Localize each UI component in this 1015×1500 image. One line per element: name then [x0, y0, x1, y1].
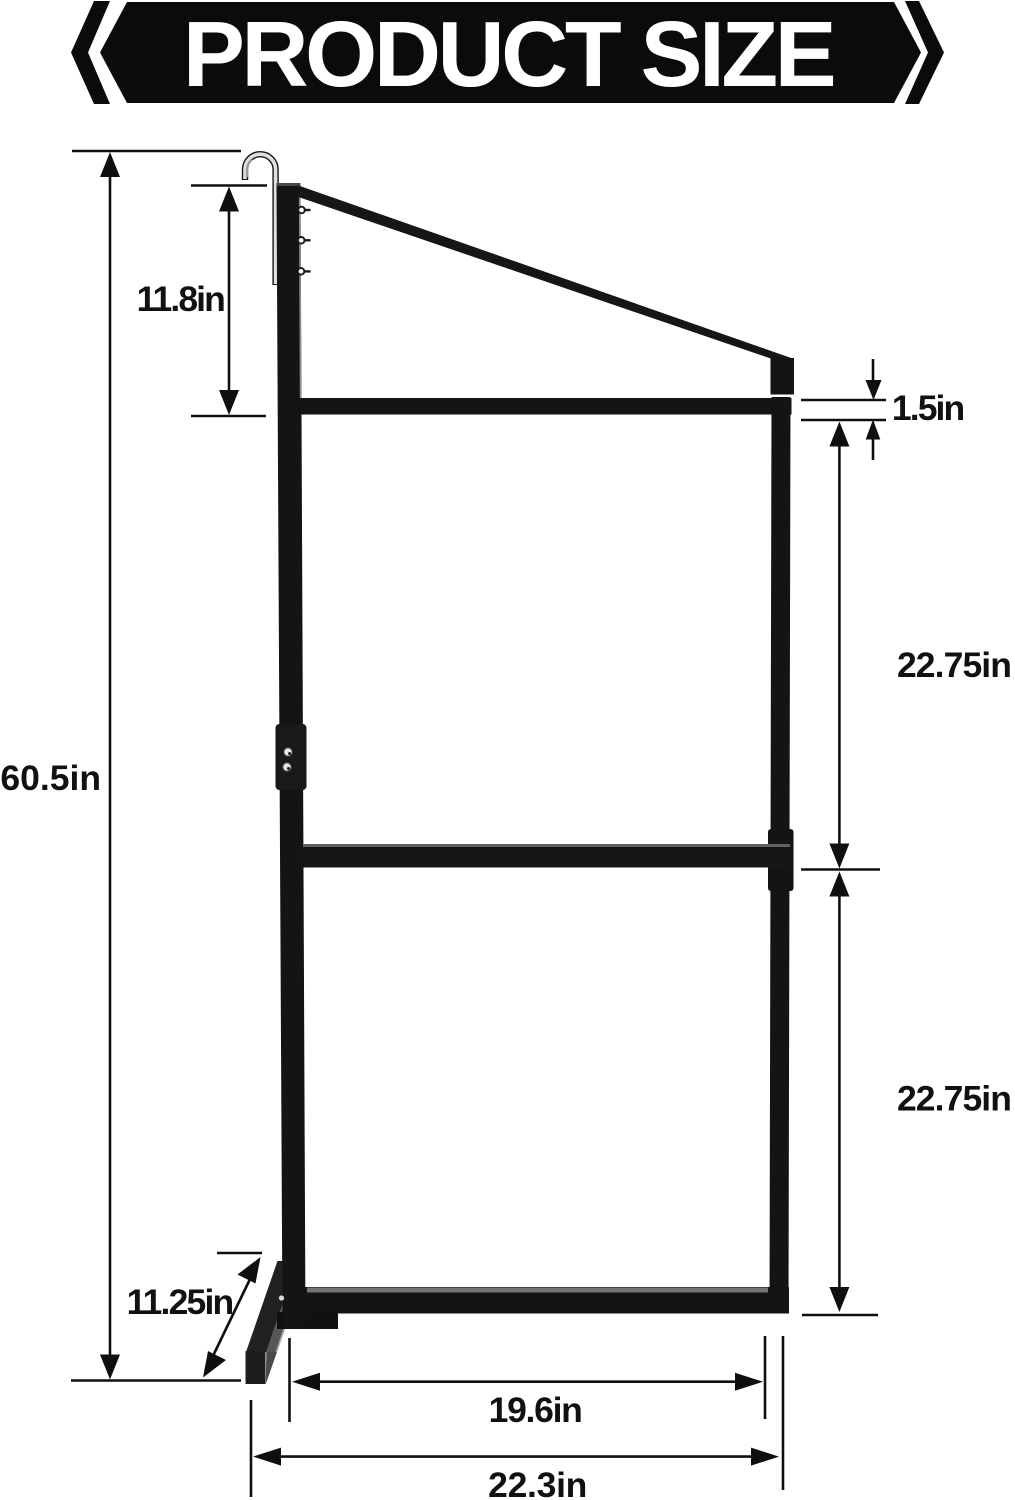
svg-text:11.25in: 11.25in	[127, 1282, 233, 1322]
svg-text:22.75in: 22.75in	[897, 1079, 1011, 1119]
svg-text:22.3in: 22.3in	[488, 1465, 587, 1500]
svg-text:PRODUCT SIZE: PRODUCT SIZE	[183, 2, 834, 106]
svg-text:19.6in: 19.6in	[489, 1390, 582, 1430]
svg-text:11.8in: 11.8in	[137, 279, 224, 319]
svg-text:1.5in: 1.5in	[892, 388, 964, 428]
svg-text:22.75in: 22.75in	[897, 645, 1011, 685]
svg-text:60.5in: 60.5in	[0, 758, 101, 798]
